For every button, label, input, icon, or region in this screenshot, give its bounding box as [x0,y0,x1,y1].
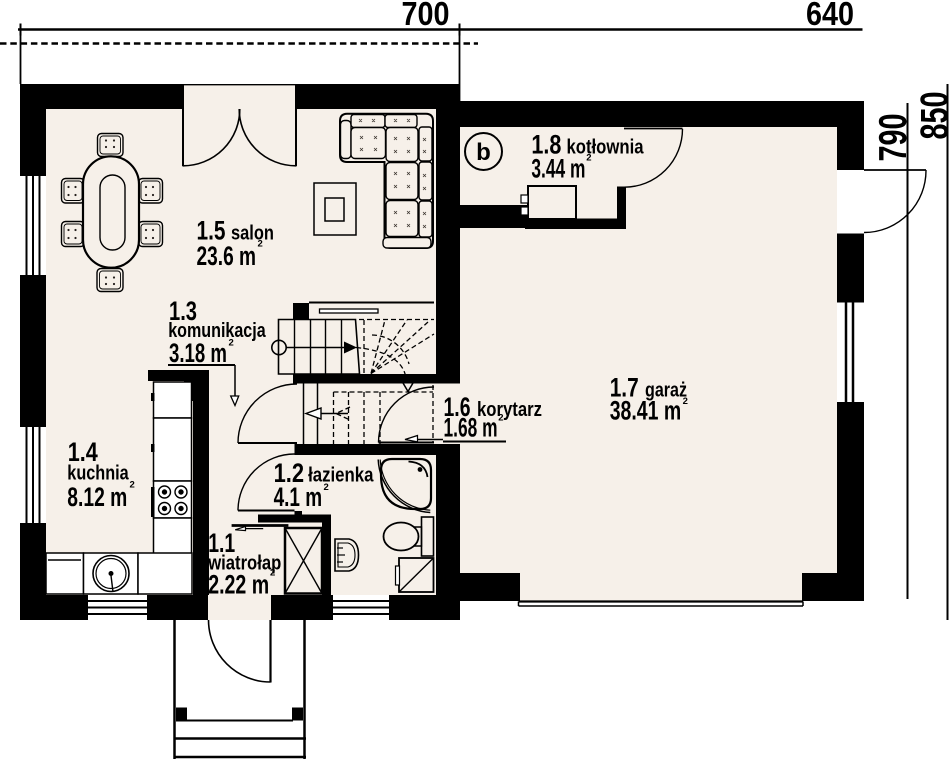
svg-text:2: 2 [683,396,688,407]
svg-text:kuchnia: kuchnia [67,463,129,485]
svg-text:2: 2 [229,338,234,349]
svg-text:23.6 m: 23.6 m [197,241,257,271]
svg-text:2: 2 [258,239,263,250]
svg-text:8.12 m: 8.12 m [67,482,127,512]
svg-text:2: 2 [586,153,591,164]
svg-text:790: 790 [872,114,915,162]
svg-text:1.68 m: 1.68 m [444,413,498,443]
svg-text:4.1 m: 4.1 m [274,482,323,512]
svg-text:38.41 m: 38.41 m [610,396,682,426]
svg-text:2: 2 [324,482,329,493]
svg-text:2: 2 [130,480,135,491]
svg-text:b: b [476,139,491,166]
svg-text:3.44 m: 3.44 m [531,154,585,184]
svg-text:2: 2 [270,568,275,579]
svg-text:850: 850 [914,92,950,140]
svg-text:2.22 m: 2.22 m [208,570,269,600]
svg-text:640: 640 [806,0,854,32]
svg-text:2: 2 [498,413,503,424]
svg-text:3.18 m: 3.18 m [169,338,227,368]
svg-text:700: 700 [402,0,450,32]
